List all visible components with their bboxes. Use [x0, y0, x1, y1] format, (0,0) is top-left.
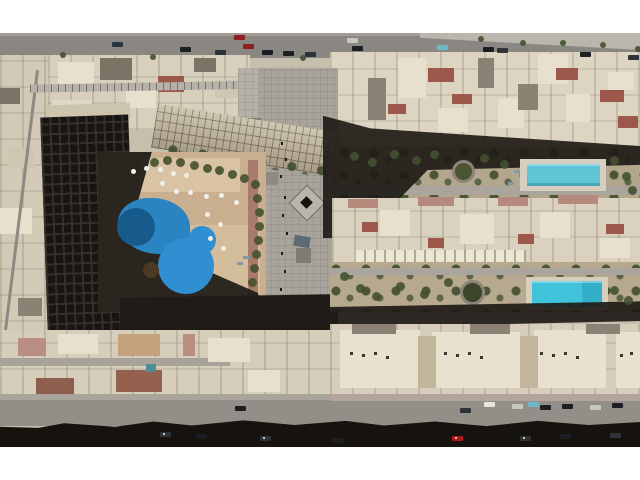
- roof-patch: [118, 334, 160, 356]
- garden-path-2: [330, 268, 640, 275]
- arched-terrace-strip: [356, 250, 526, 262]
- sun-lounger: [237, 262, 243, 265]
- tree-circle-2: [460, 280, 485, 305]
- roof-patch: [18, 338, 46, 356]
- garden-tree: [390, 150, 399, 159]
- complex-bottom-shadow: [120, 294, 339, 334]
- pool-parasol: [171, 171, 176, 176]
- sun-lounger: [243, 256, 249, 259]
- pool-parasol: [174, 189, 179, 194]
- roof-patch: [540, 212, 570, 238]
- roof-patch: [398, 58, 426, 98]
- pool-parasol: [131, 169, 136, 174]
- plaza-inset: [296, 248, 311, 263]
- courtyard-tree: [215, 166, 224, 175]
- car-in-shadow: [160, 432, 171, 437]
- car-top-road: [305, 52, 316, 57]
- car-in-shadow: [196, 434, 207, 439]
- car-bottom-street: [562, 404, 573, 409]
- car-bottom-street: [528, 402, 539, 407]
- car-in-shadow: [332, 438, 343, 443]
- street-tree: [478, 36, 484, 42]
- roof-patch: [566, 94, 590, 122]
- street-tree: [560, 40, 566, 46]
- aerial-photo-stage: [0, 0, 640, 480]
- car-in-shadow: [452, 436, 463, 441]
- pool-parasol: [184, 173, 189, 178]
- left-roof-darkgrey: [0, 88, 20, 104]
- street-tree: [600, 42, 606, 48]
- roof-patch: [208, 338, 250, 362]
- pedestrian: [282, 214, 284, 217]
- rooftop-ac-unit: [362, 354, 365, 357]
- roof-patch: [362, 222, 378, 232]
- car-top-road: [347, 38, 358, 43]
- roof-patch: [600, 90, 624, 102]
- letterbox-bottom: [0, 447, 640, 480]
- courtyard-tree: [251, 180, 260, 189]
- roof-patch: [608, 72, 634, 90]
- roof-patch: [518, 84, 538, 110]
- car-top-road: [352, 46, 363, 51]
- garden-tree: [372, 292, 381, 301]
- photo-area: [0, 0, 640, 480]
- street-tree: [520, 40, 526, 46]
- roof-patch: [428, 68, 454, 82]
- pool-parasol: [218, 222, 223, 227]
- bottom-sidewalk-right: [330, 394, 640, 401]
- pool-parasol: [208, 236, 213, 241]
- rooftop-ac-unit: [576, 356, 579, 359]
- car-top-road: [283, 51, 294, 56]
- car-top-road: [262, 50, 273, 55]
- roof-patch: [460, 214, 494, 244]
- letterbox-top: [0, 0, 640, 33]
- garden-tree: [412, 156, 421, 165]
- pool-parasol: [234, 200, 239, 205]
- garden-tree: [420, 290, 429, 299]
- car-top-road: [215, 50, 226, 55]
- pool-parasol: [204, 194, 209, 199]
- main-pool-dark-lobe: [117, 208, 155, 246]
- pedestrian: [284, 270, 286, 273]
- roof-patch: [194, 58, 216, 72]
- roof-patch: [58, 334, 98, 354]
- pool-parasol: [219, 193, 224, 198]
- rect-pool-1: [527, 164, 600, 186]
- rooftop-ac-unit: [552, 354, 555, 357]
- car-in-shadow: [520, 436, 531, 441]
- rooftop-ac-unit: [540, 352, 543, 355]
- courtyard-tree: [253, 194, 262, 203]
- roof-patch: [586, 324, 620, 334]
- headlight-glint: [455, 437, 457, 439]
- rooftop-ac-unit: [564, 352, 567, 355]
- garden-tree: [500, 160, 509, 169]
- roof-patch: [518, 234, 534, 244]
- courtyard-tree: [228, 170, 237, 179]
- roof-patch: [352, 324, 396, 334]
- courtyard-tree: [240, 174, 249, 183]
- roof-patch: [116, 370, 162, 392]
- left-roof-beige: [8, 148, 34, 168]
- garden-tree: [350, 152, 359, 161]
- roof-patch: [558, 195, 598, 204]
- roof-patch: [388, 104, 406, 114]
- pool-parasol: [158, 167, 163, 172]
- car-top-road: [234, 35, 245, 40]
- apartment-block: [432, 332, 520, 388]
- car-bottom-street: [612, 403, 623, 408]
- roof-patch: [248, 370, 280, 392]
- rooftop-ac-unit: [350, 352, 353, 355]
- courtyard-tree: [252, 250, 261, 259]
- rooftop-ac-unit: [444, 352, 447, 355]
- car-bottom-street: [460, 408, 471, 413]
- garden-tree: [340, 272, 349, 281]
- courtyard-tree: [190, 161, 199, 170]
- garden-tree: [480, 154, 489, 163]
- car-bottom-street: [512, 404, 523, 409]
- garden-tree: [610, 286, 619, 295]
- street-tree: [300, 55, 306, 61]
- garden-tree: [356, 284, 365, 293]
- courtyard-tree: [150, 158, 159, 167]
- roof-patch: [470, 324, 510, 334]
- car-bottom-street: [540, 405, 551, 410]
- car-top-road: [497, 48, 508, 53]
- pool-parasol: [144, 166, 149, 171]
- roof-patch: [100, 58, 132, 80]
- roof-patch: [183, 334, 195, 356]
- garden-tree: [444, 278, 453, 287]
- garden-tree: [628, 186, 637, 195]
- left-roof-grey: [18, 298, 42, 316]
- courtyard-tree: [203, 164, 212, 173]
- pool-parasol: [160, 181, 165, 186]
- roof-patch: [418, 197, 454, 206]
- car-bottom-street: [484, 402, 495, 407]
- roof-patch: [348, 199, 378, 208]
- roof-patch: [556, 68, 578, 80]
- car-top-road: [180, 47, 191, 52]
- street-tree: [60, 52, 66, 58]
- roof-patch: [606, 224, 624, 234]
- street-tree: [150, 54, 156, 60]
- rooftop-ac-unit: [386, 356, 389, 359]
- pedestrian: [281, 252, 283, 255]
- sun-lounger: [514, 170, 520, 173]
- pool-parasol: [188, 190, 193, 195]
- headlight-glint: [263, 437, 265, 439]
- garden-tree: [610, 156, 619, 165]
- roof-patch: [428, 238, 444, 248]
- garden-tree: [622, 172, 631, 181]
- pedestrian: [284, 196, 286, 199]
- roof-patch: [618, 116, 638, 128]
- rooftop-ac-unit: [456, 354, 459, 357]
- car-top-road: [483, 47, 494, 52]
- car-in-shadow: [560, 434, 571, 439]
- car-in-shadow: [610, 433, 621, 438]
- roof-patch: [478, 58, 494, 88]
- pedestrian: [285, 306, 287, 309]
- courtyard-tree: [248, 278, 257, 287]
- apartment-block: [534, 330, 606, 388]
- street-tree: [635, 46, 640, 52]
- pedestrian: [285, 158, 287, 161]
- tree-circle-1: [452, 160, 475, 183]
- pedestrian: [282, 322, 284, 325]
- car-top-road: [112, 42, 123, 47]
- lane: [0, 358, 230, 366]
- headlight-glint: [523, 437, 525, 439]
- car-in-shadow: [260, 436, 271, 441]
- garden-tree: [430, 150, 439, 159]
- car-top-road: [437, 45, 448, 50]
- car-top-road: [243, 44, 254, 49]
- garden-tree: [368, 158, 377, 167]
- courtyard-tree: [176, 158, 185, 167]
- courtyard-gap: [520, 336, 538, 388]
- courtyard-tree: [254, 236, 263, 245]
- sun-lounger: [508, 182, 514, 185]
- roof-patch: [600, 238, 630, 258]
- rooftop-ac-unit: [630, 352, 633, 355]
- courtyard-tree: [255, 208, 264, 217]
- car-bottom-street: [590, 405, 601, 410]
- car-top-road: [580, 52, 591, 57]
- roof-patch: [380, 210, 410, 236]
- apartment-block: [340, 330, 420, 388]
- roof-patch: [438, 108, 468, 132]
- courtyard-tree: [250, 264, 259, 273]
- courtyard-gap: [418, 336, 436, 388]
- pool-palm-island: [143, 262, 159, 278]
- pool-parasol: [205, 212, 210, 217]
- courtyard-tree: [163, 156, 172, 165]
- bottom-sidewalk-left: [0, 394, 330, 400]
- rooftop-ac-unit: [620, 354, 623, 357]
- pedestrian: [280, 175, 282, 178]
- garden-tree: [624, 296, 633, 305]
- headlight-glint: [163, 433, 165, 435]
- pedestrian: [280, 288, 282, 291]
- pedestrian: [286, 232, 288, 235]
- rooftop-ac-unit: [480, 356, 483, 359]
- garden-tree: [396, 282, 405, 291]
- car-bottom-street: [235, 406, 246, 411]
- roof-patch: [452, 94, 472, 104]
- rooftop-ac-unit: [468, 352, 471, 355]
- rooftop-ac-unit: [374, 352, 377, 355]
- courtyard-tree: [255, 222, 264, 231]
- pool-parasol: [221, 246, 226, 251]
- car-top-road: [628, 55, 639, 60]
- roof-patch: [498, 197, 528, 206]
- pedestrian: [281, 142, 283, 145]
- roof-patch: [368, 78, 386, 120]
- apartment-block: [616, 332, 640, 388]
- teal-panel: [146, 364, 156, 372]
